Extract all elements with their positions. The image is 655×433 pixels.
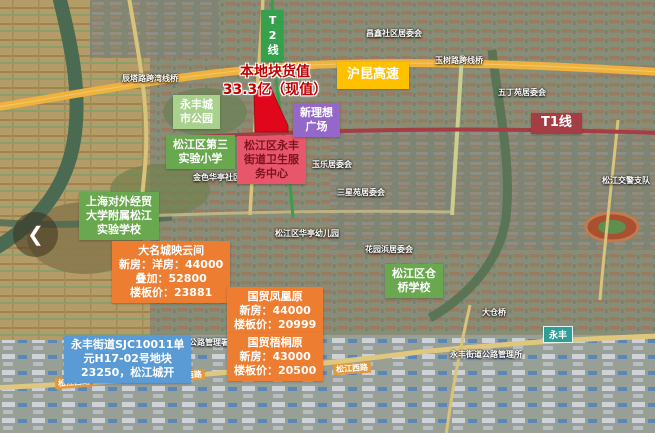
label-line: 上海对外经贸: [86, 195, 152, 209]
label-line: 松江区第三: [173, 138, 228, 152]
map-label-huayuanbang-committee: 花园浜居委会: [365, 244, 413, 255]
label-line: 永丰城: [180, 98, 213, 112]
label-line: 桥学校: [392, 281, 436, 295]
project-price-line: 叠加：52800: [119, 272, 223, 286]
label-line: 务中心: [244, 167, 299, 181]
project-price-line: 楼板价：20500: [234, 364, 316, 378]
headline-line2: 33.3亿（现值）: [210, 82, 340, 100]
project-price-line: 新房：43000: [234, 350, 316, 364]
map-label-changxin-committee: 昌鑫社区居委会: [366, 28, 422, 39]
label-guomao-wutong-project: 国贸梧桐原 新房：43000 楼板价：20500: [227, 333, 323, 381]
label-line: 23250，松江城开: [71, 366, 184, 380]
chevron-left-icon: ❮: [27, 222, 44, 247]
label-health-center: 松江区永丰 街道卫生服 务中心: [237, 136, 306, 184]
parcel-value-headline: 本地块货值 33.3亿（现值）: [210, 64, 340, 99]
map-label-sanxingyuan-committee: 三星苑居委会: [337, 187, 385, 198]
label-line: 永丰街道SJC10011单: [71, 338, 184, 352]
map-label-yushu-road-bridge: 玉树路跨线桥: [435, 55, 483, 66]
label-line: 大学附属松江: [86, 209, 152, 223]
station-badge-yongfeng: 永丰: [543, 326, 573, 343]
label-xinlixiang-plaza: 新理想 广场: [293, 103, 340, 137]
label-sjc-parcel-listing: 永丰街道SJC10011单 元H17-02号地块 23250，松江城开: [64, 335, 191, 383]
label-line: 松江区仓: [392, 267, 436, 281]
project-name: 国贸凤凰原: [234, 290, 316, 304]
map-label-huating-kindergarten: 松江区华亭幼儿园: [275, 228, 339, 239]
map-canvas[interactable]: 辰塔路跨湾线桥 玉树路跨线桥 昌鑫社区居委会 五丁苑居委会 玉乐居委会 金色华亭…: [0, 0, 655, 433]
label-t2-line: T2线: [261, 10, 283, 61]
project-price-line: 楼板价：20999: [234, 318, 316, 332]
label-damingcheng-project: 大名城映云间 新房：洋房：44000 叠加：52800 楼板价：23881: [112, 241, 230, 303]
project-price-line: 新房：洋房：44000: [119, 258, 223, 272]
map-label-yongfeng-road-office: 永丰街道公路管理所: [450, 349, 522, 360]
label-line: 松江区永丰: [244, 139, 299, 153]
map-label-traffic-police: 松江交警支队: [602, 175, 650, 186]
project-name: 大名城映云间: [119, 244, 223, 258]
label-suibe-school: 上海对外经贸 大学附属松江 实验学校: [79, 192, 159, 240]
map-label-wudingyuan-committee: 五丁苑居委会: [498, 87, 546, 98]
project-price-line: 新房：44000: [234, 304, 316, 318]
project-name: 国贸梧桐原: [234, 336, 316, 350]
label-guomao-fenghuang-project: 国贸凤凰原 新房：44000 楼板价：20999: [227, 287, 323, 335]
label-hukun-expressway: 沪昆高速: [337, 62, 409, 89]
project-price-line: 楼板价：23881: [119, 286, 223, 300]
label-cangqiao-school: 松江区仓 桥学校: [385, 264, 443, 298]
map-label-dacang-bridge: 大仓桥: [482, 307, 506, 318]
label-line: 实验小学: [173, 152, 228, 166]
label-line: 市公园: [180, 112, 213, 126]
map-label-chenta-road-bridge: 辰塔路跨湾线桥: [122, 73, 178, 84]
label-t1-line: T1线: [531, 113, 582, 134]
label-line: 新理想: [300, 106, 333, 120]
label-third-experimental-school: 松江区第三 实验小学: [166, 135, 235, 169]
label-line: 实验学校: [86, 223, 152, 237]
label-line: 街道卫生服: [244, 153, 299, 167]
headline-line1: 本地块货值: [210, 64, 340, 82]
label-yongfeng-park: 永丰城 市公园: [173, 95, 220, 129]
label-line: 元H17-02号地块: [71, 352, 184, 366]
back-button[interactable]: ❮: [13, 212, 58, 257]
label-line: 广场: [300, 120, 333, 134]
map-label-yule-committee: 玉乐居委会: [312, 159, 352, 170]
